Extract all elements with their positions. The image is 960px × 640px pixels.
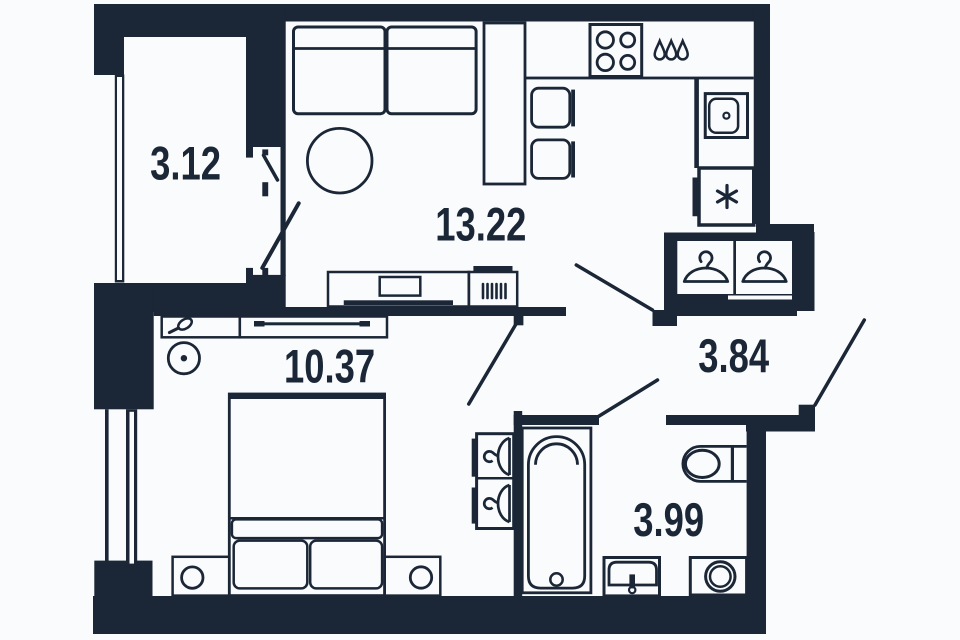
svg-text:10.37: 10.37: [284, 340, 375, 393]
svg-text:13.22: 13.22: [435, 198, 526, 251]
svg-text:3.84: 3.84: [698, 329, 769, 382]
svg-text:3.99: 3.99: [633, 494, 704, 547]
svg-text:3.12: 3.12: [150, 137, 221, 190]
